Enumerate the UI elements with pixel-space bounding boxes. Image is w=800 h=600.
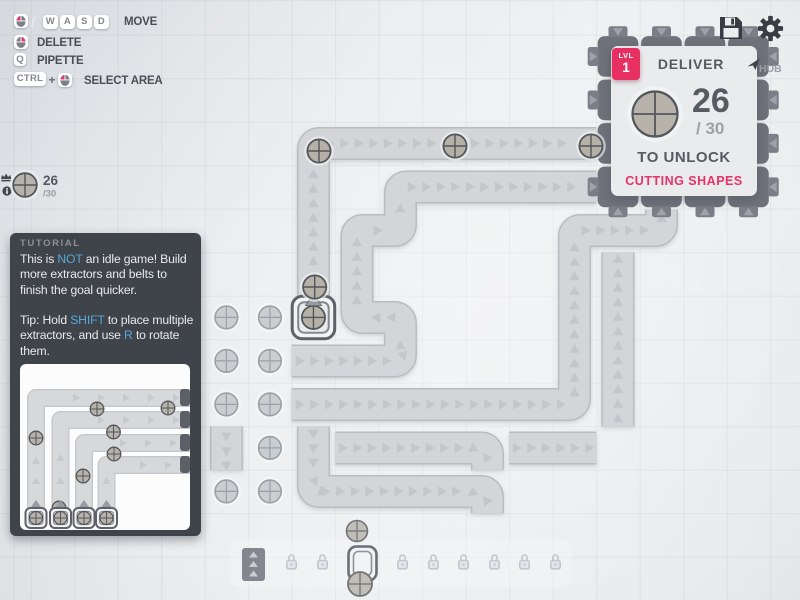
svg-text:/30: /30 [43, 189, 56, 200]
svg-text:26: 26 [43, 173, 59, 188]
